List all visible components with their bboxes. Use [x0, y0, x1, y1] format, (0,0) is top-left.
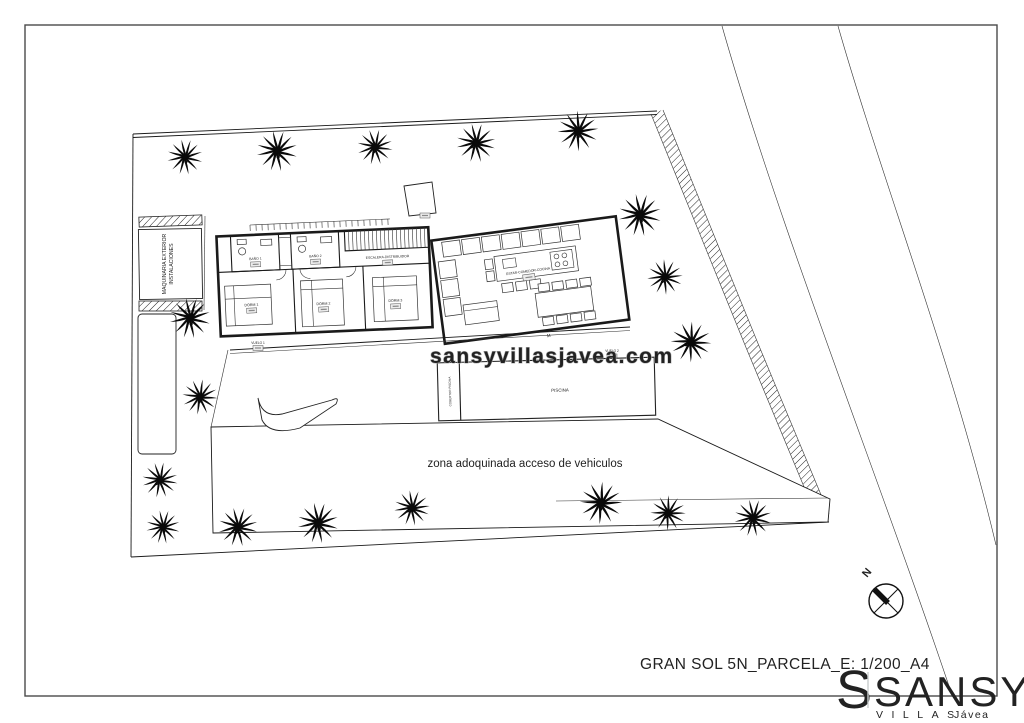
left-garden-strip — [138, 314, 176, 454]
bed3-label: DORM 3 — [388, 298, 402, 303]
sansy-logo: S SANSY VILLAS Jávea — [836, 660, 1024, 721]
site-plan-drawing: MAQUINARIA EXTERIOR INSTALACIONES zona a… — [0, 0, 1024, 723]
logo-location: Jávea — [954, 709, 990, 721]
sink-icon — [261, 239, 272, 245]
paved-zone-label: zona adoquinada acceso de vehiculos — [427, 458, 622, 470]
plan-sheet: MAQUINARIA EXTERIOR INSTALACIONES zona a… — [0, 0, 1024, 723]
machinery-label-line1: MAQUINARIA EXTERIOR — [162, 233, 168, 294]
watermark: sansyvillasjavea.com — [430, 345, 674, 368]
vuelo1-label: VUELO 1 — [251, 341, 265, 345]
bed1-label: DORM 1 — [244, 303, 258, 308]
logo-monogram: S — [836, 660, 872, 720]
entry-porch — [404, 182, 436, 218]
machinery-label-line2: INSTALACIONES — [169, 243, 175, 285]
bath1-label: BAÑO 1 — [249, 256, 262, 262]
sink-icon — [321, 236, 332, 242]
bath2-label: BAÑO 2 — [309, 253, 322, 259]
logo-tagline: VILLAS — [876, 709, 963, 721]
logo-brand: SANSY — [874, 668, 1024, 715]
hatch-band-top — [139, 215, 202, 227]
pool-label: PISCINA — [551, 387, 569, 392]
bed2-label: DORM 2 — [316, 302, 330, 307]
pool-cover-label: COBERTOR PISCINA — [448, 377, 453, 407]
